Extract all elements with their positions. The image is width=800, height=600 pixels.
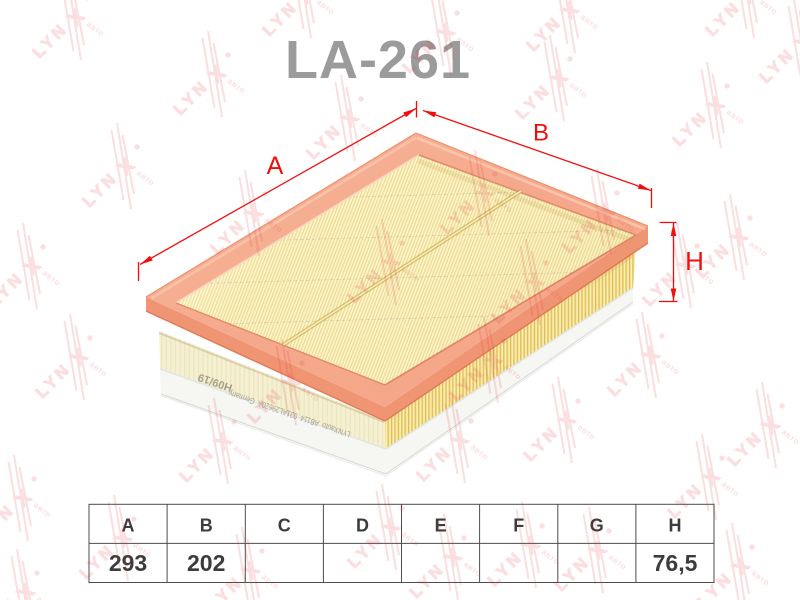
svg-text:C: C <box>278 516 291 536</box>
svg-text:D: D <box>356 516 369 536</box>
svg-text:202: 202 <box>187 550 225 576</box>
svg-text:A: A <box>267 152 284 180</box>
svg-text:B: B <box>533 120 549 147</box>
svg-text:B: B <box>200 516 213 536</box>
svg-text:76,5: 76,5 <box>653 550 698 576</box>
